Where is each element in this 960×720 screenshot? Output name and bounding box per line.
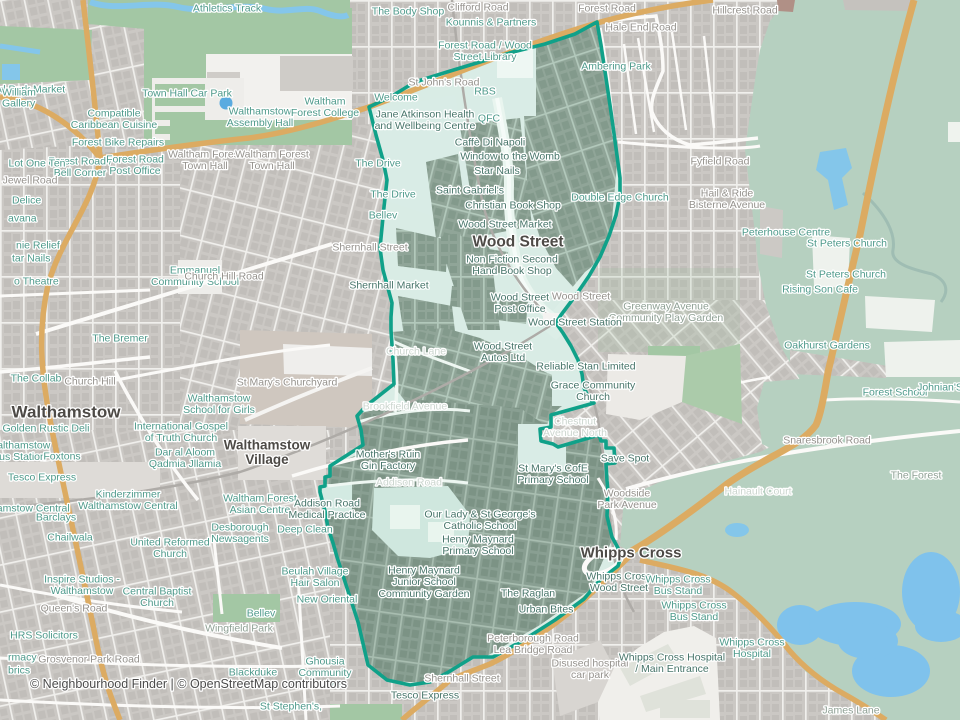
svg-text:Whipps CrossBus Stand: Whipps CrossBus Stand	[661, 600, 726, 624]
svg-text:Forest Bike Repairs: Forest Bike Repairs	[72, 137, 164, 149]
svg-text:Dar al AloomQadmia Jllamia: Dar al AloomQadmia Jllamia	[149, 447, 222, 471]
svg-text:The Bremer: The Bremer	[92, 333, 148, 345]
svg-text:Window to the Womb: Window to the Womb	[460, 151, 560, 163]
svg-text:Golden Rustic Deli: Golden Rustic Deli	[3, 423, 90, 435]
svg-text:Rising Son Cafe: Rising Son Cafe	[782, 284, 858, 296]
svg-text:Hainault Court: Hainault Court	[724, 486, 791, 498]
svg-text:Hale End Road: Hale End Road	[605, 22, 676, 34]
svg-text:Church Hill: Church Hill	[64, 376, 115, 388]
svg-text:St John's Road: St John's Road	[409, 77, 480, 89]
svg-text:WalthamstowAssembly Hall: WalthamstowAssembly Hall	[227, 106, 294, 130]
svg-text:Queen's Road: Queen's Road	[41, 603, 108, 615]
svg-text:tar Nails: tar Nails	[12, 253, 51, 265]
svg-text:Waltham ForestAsian Centre: Waltham ForestAsian Centre	[223, 493, 297, 517]
svg-text:Addison Road: Addison Road	[376, 477, 442, 489]
svg-text:Tesco Express: Tesco Express	[391, 690, 459, 702]
svg-text:WalthamstowSchool for Girls: WalthamstowSchool for Girls	[183, 393, 255, 417]
svg-text:Wingfield Park: Wingfield Park	[205, 623, 273, 635]
svg-text:Wood Street Market: Wood Street Market	[458, 219, 551, 231]
svg-text:Grosvenor Park Road: Grosvenor Park Road	[38, 654, 140, 666]
svg-text:o Theatre: o Theatre	[14, 276, 59, 288]
svg-text:brics: brics	[8, 665, 30, 677]
svg-text:Wood StreetAutos Ltd: Wood StreetAutos Ltd	[474, 341, 532, 365]
svg-text:DesboroughNewsagents: DesboroughNewsagents	[211, 522, 269, 546]
svg-text:Greenway AvenueCommunity Play: Greenway AvenueCommunity Play Garden	[609, 301, 724, 325]
svg-text:Double Edge Church: Double Edge Church	[571, 192, 669, 204]
svg-text:Snaresbrook Road: Snaresbrook Road	[783, 435, 871, 447]
svg-text:The Raglan: The Raglan	[501, 588, 555, 600]
svg-text:rmacy: rmacy	[8, 652, 37, 664]
svg-text:Gallery: Gallery	[2, 98, 36, 110]
svg-text:International Gospelof Truth C: International Gospelof Truth Church	[134, 421, 228, 445]
svg-text:The Body Shop: The Body Shop	[372, 6, 445, 18]
svg-text:Mother's RuinGin Factory: Mother's RuinGin Factory	[356, 449, 421, 473]
svg-text:Beulah VillageHair Salon: Beulah VillageHair Salon	[282, 566, 349, 590]
svg-text:James Lane: James Lane	[822, 705, 879, 717]
svg-text:Barclays: Barclays	[36, 512, 76, 524]
svg-text:Delice: Delice	[12, 195, 41, 207]
svg-text:Caffè Di Napoli: Caffè Di Napoli	[455, 137, 525, 149]
svg-text:Wood StreetPost Office: Wood StreetPost Office	[491, 292, 549, 316]
svg-text:Chailwala: Chailwala	[47, 532, 93, 544]
svg-text:Addison RoadMedical Practice: Addison RoadMedical Practice	[288, 498, 365, 522]
svg-text:Urban Bites: Urban Bites	[519, 604, 574, 616]
svg-text:© Neighbourhood Finder | © Ope: © Neighbourhood Finder | © OpenStreetMap…	[30, 677, 347, 691]
svg-text:Clifford Road: Clifford Road	[447, 2, 508, 14]
svg-text:QFC: QFC	[478, 113, 501, 125]
svg-text:Welcome: Welcome	[374, 92, 418, 104]
svg-text:Christian Book Shop: Christian Book Shop	[465, 200, 561, 212]
svg-text:Athletics Track: Athletics Track	[193, 3, 262, 15]
svg-text:Shernhall Street: Shernhall Street	[424, 673, 499, 685]
svg-text:Oakhurst Gardens: Oakhurst Gardens	[784, 340, 870, 352]
svg-text:St Peters Church: St Peters Church	[807, 238, 887, 250]
svg-text:Lot One Ten: Lot One Ten	[8, 158, 65, 170]
svg-text:Church Lane: Church Lane	[386, 346, 446, 358]
svg-text:Wood Street: Wood Street	[552, 291, 610, 303]
svg-text:Wood Street Station: Wood Street Station	[528, 317, 622, 329]
svg-text:Wood Street: Wood Street	[473, 234, 564, 251]
svg-text:Hillcrest Road: Hillcrest Road	[712, 5, 778, 17]
svg-text:Town Hall Car Park: Town Hall Car Park	[142, 88, 233, 100]
svg-text:New Oriental: New Oriental	[297, 594, 358, 606]
svg-text:WoodsidePark Avenue: WoodsidePark Avenue	[597, 488, 657, 512]
svg-text:HRS Solicitors: HRS Solicitors	[10, 630, 78, 642]
svg-text:Shernhall Street: Shernhall Street	[332, 242, 407, 254]
svg-text:Forest Road: Forest Road	[578, 3, 636, 15]
svg-text:The Collab: The Collab	[11, 373, 62, 385]
svg-text:Shernhall Market: Shernhall Market	[349, 280, 428, 292]
svg-text:RBS: RBS	[474, 86, 496, 98]
svg-text:Jane Atkinson Healthand Wellbe: Jane Atkinson Healthand Wellbeing Centre	[375, 109, 476, 133]
svg-text:Save Spot: Save Spot	[601, 453, 650, 465]
svg-text:Whipps CrossBus Stand: Whipps CrossBus Stand	[645, 574, 710, 598]
svg-text:The Drive: The Drive	[370, 189, 416, 201]
svg-text:St Mary's CofEPrimary School: St Mary's CofEPrimary School	[517, 463, 588, 487]
svg-text:St Peters Church: St Peters Church	[806, 269, 886, 281]
svg-text:Kounnis & Partners: Kounnis & Partners	[446, 17, 536, 29]
svg-text:Henry MaynardPrimary School: Henry MaynardPrimary School	[442, 534, 514, 558]
svg-text:Inspire Studios -Walthamstow: Inspire Studios -Walthamstow	[44, 574, 120, 598]
svg-text:St Mary's Churchyard: St Mary's Churchyard	[237, 377, 338, 389]
svg-text:St Stephen's,: St Stephen's,	[260, 701, 322, 713]
svg-text:Foxtons: Foxtons	[43, 451, 80, 463]
svg-text:Reliable Stan Limited: Reliable Stan Limited	[536, 361, 635, 373]
svg-text:Whipps Cross: Whipps Cross	[581, 545, 682, 562]
svg-text:Star Nails: Star Nails	[474, 165, 520, 177]
svg-text:Tesco Express: Tesco Express	[8, 472, 76, 484]
svg-text:Peterborough RoadLea Bridge Ro: Peterborough RoadLea Bridge Road	[487, 633, 579, 657]
svg-text:Jewel Road: Jewel Road	[3, 175, 58, 187]
svg-text:Johnian'S: Johnian'S	[917, 382, 960, 394]
svg-text:The Drive: The Drive	[355, 158, 401, 170]
svg-text:Fyfield Road: Fyfield Road	[691, 156, 750, 168]
svg-text:Saint Gabriel's: Saint Gabriel's	[436, 185, 504, 197]
svg-text:nie Relief: nie Relief	[16, 240, 60, 252]
svg-text:Ambering Park: Ambering Park	[581, 61, 651, 73]
svg-text:Walthamstow: Walthamstow	[12, 403, 122, 422]
svg-text:avana: avana	[8, 213, 37, 225]
svg-text:Forest RoadPost Office: Forest RoadPost Office	[106, 154, 164, 178]
svg-text:Non Fiction SecondHand Book Sh: Non Fiction SecondHand Book Shop	[466, 254, 558, 278]
svg-text:Brookfield Avenue: Brookfield Avenue	[363, 401, 448, 413]
svg-text:Deep Clean: Deep Clean	[277, 524, 333, 536]
svg-text:Church Hill Road: Church Hill Road	[184, 271, 264, 283]
svg-text:Bellev: Bellev	[369, 210, 398, 222]
svg-text:The Forest: The Forest	[891, 470, 942, 482]
svg-text:Whipps CrossWood Street: Whipps CrossWood Street	[586, 571, 651, 595]
svg-text:Bellev: Bellev	[247, 608, 276, 620]
